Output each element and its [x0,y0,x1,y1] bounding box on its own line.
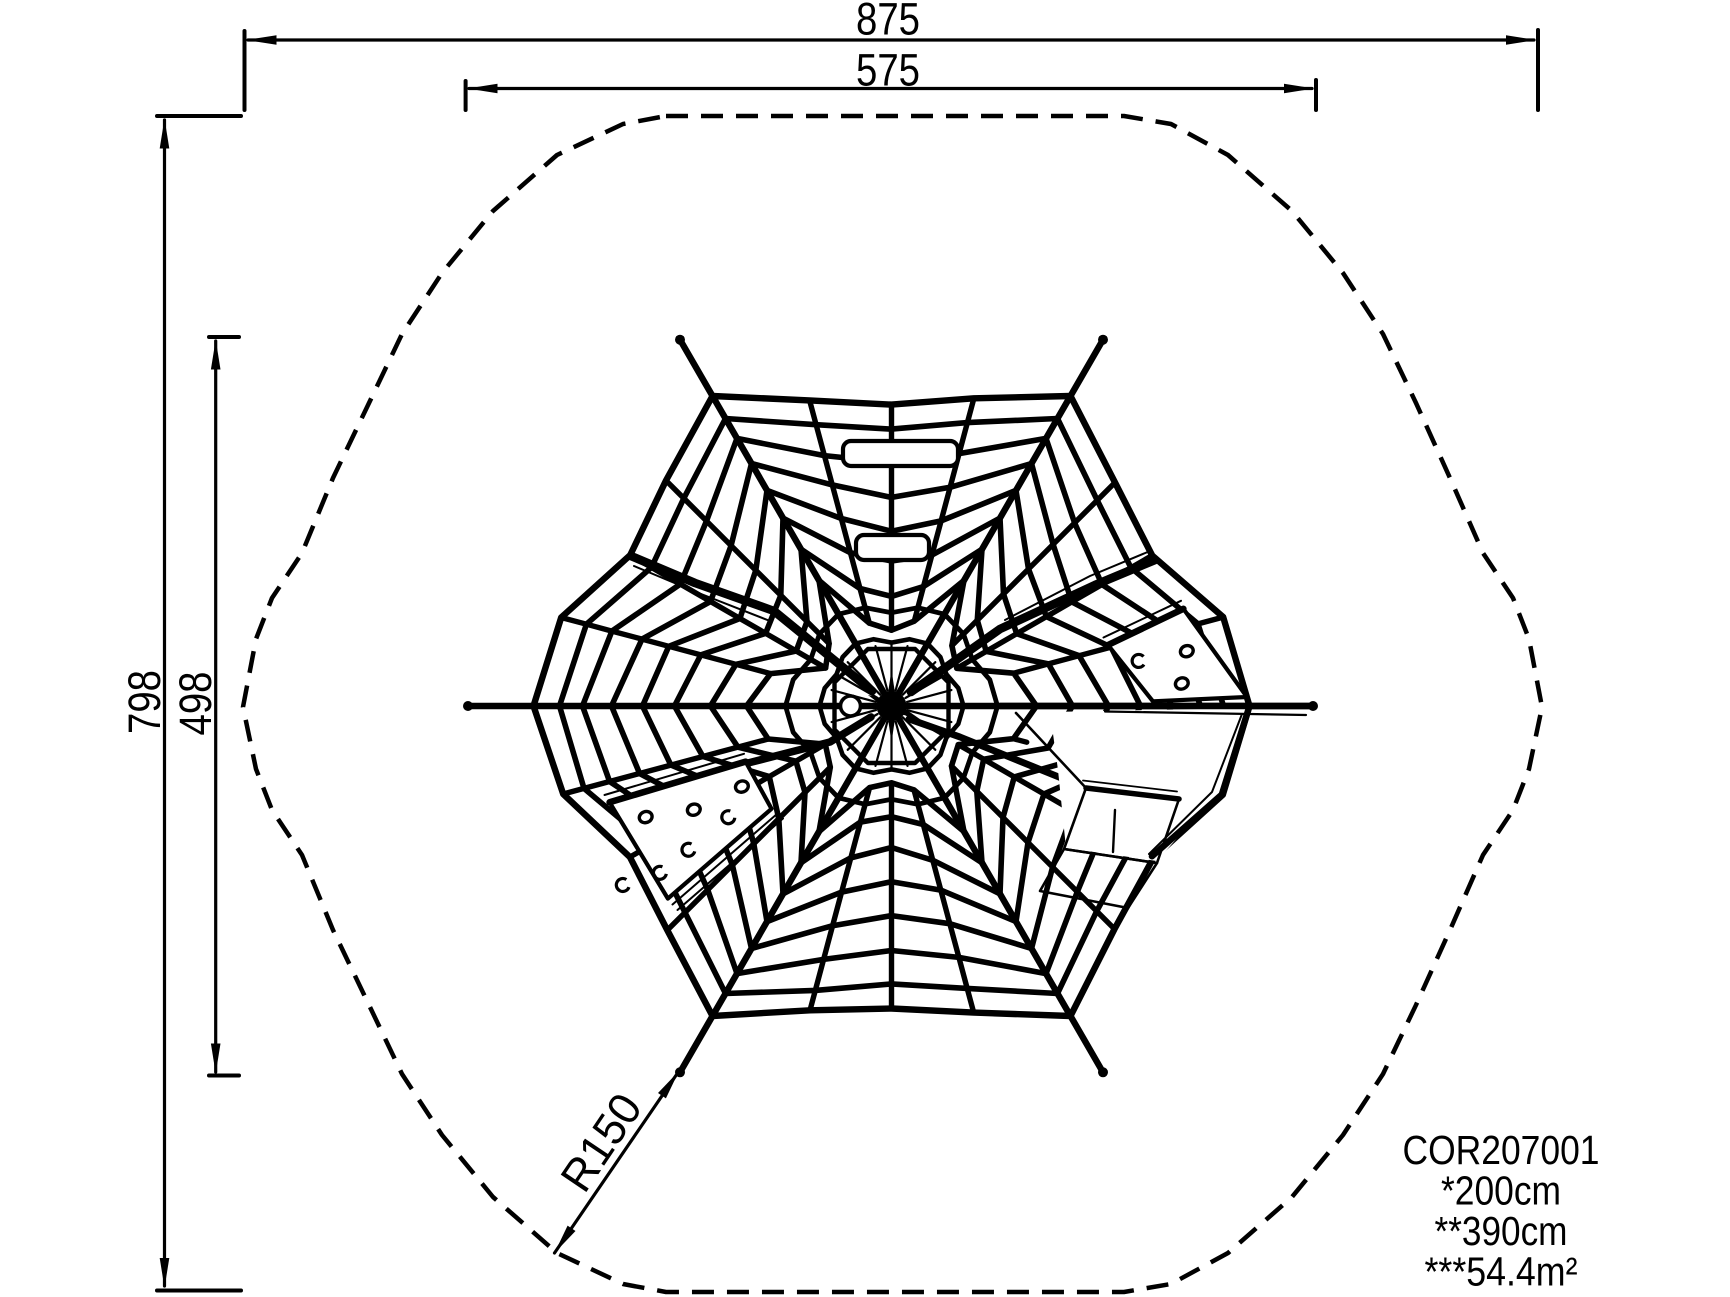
svg-text:***54.4m²: ***54.4m² [1425,1249,1578,1295]
svg-text:*200cm: *200cm [1441,1168,1561,1214]
svg-text:798: 798 [119,670,170,734]
svg-text:COR207001: COR207001 [1403,1127,1600,1173]
svg-text:575: 575 [856,45,920,96]
svg-text:**390cm: **390cm [1435,1208,1568,1254]
svg-text:498: 498 [170,672,221,736]
svg-text:875: 875 [856,0,920,45]
